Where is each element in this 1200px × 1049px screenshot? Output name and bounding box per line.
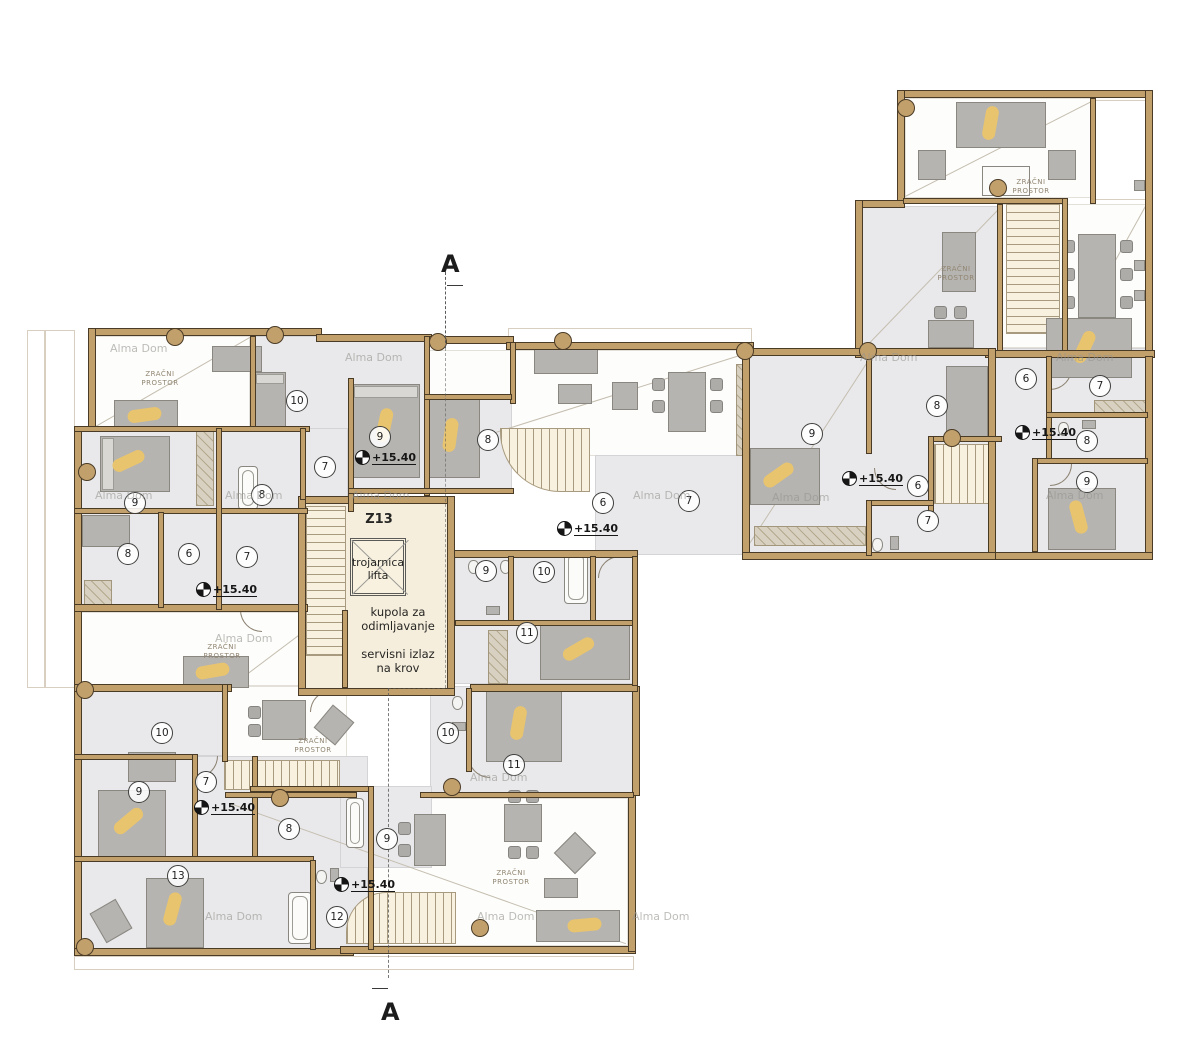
wall (1046, 412, 1148, 418)
watermark: Alma Dom (225, 489, 282, 502)
watermark: Alma Dom (860, 351, 917, 364)
column (897, 99, 915, 117)
wall (866, 500, 872, 556)
elevation-marker: +15.40 (194, 800, 255, 815)
column (271, 789, 289, 807)
armchair (1048, 150, 1076, 180)
wall (988, 552, 1153, 560)
air-space-label: ZRAČNI PROSTOR (918, 265, 994, 283)
bathtub (346, 798, 364, 848)
watermark: Alma Dom (477, 910, 534, 923)
wall (742, 348, 750, 560)
wall (632, 686, 640, 796)
wall (74, 604, 308, 612)
table (262, 700, 306, 740)
watermark: Alma Dom (1046, 489, 1103, 502)
wall (222, 684, 228, 762)
column (266, 326, 284, 344)
wall (225, 792, 357, 798)
wardrobe (754, 526, 866, 546)
chair (954, 306, 967, 319)
watermark: Alma Dom (632, 910, 689, 923)
bed-single (82, 515, 130, 547)
wall (88, 328, 96, 432)
wall (368, 786, 374, 950)
air-space-label: ZRAČNI PROSTOR (993, 178, 1069, 196)
wall (316, 334, 432, 342)
wall (466, 688, 472, 772)
column (554, 332, 572, 350)
chair (652, 400, 665, 413)
wall (1090, 98, 1096, 204)
benchmark-icon (1015, 425, 1030, 440)
elevator-label: trojarnica lifta (348, 556, 408, 582)
wall (342, 610, 348, 688)
column (166, 328, 184, 346)
wall (88, 328, 322, 336)
wall (997, 204, 1003, 352)
floor-plan: A A Z13 trojarnica lifta kupola za odiml… (0, 0, 1200, 1049)
wall (298, 496, 306, 696)
sink (486, 606, 500, 615)
wall (158, 512, 164, 608)
watermark: Alma Dom (633, 489, 690, 502)
watermark: Alma Dom (352, 489, 409, 502)
stairs (500, 428, 590, 492)
room-number-badge: 10 (286, 390, 308, 412)
sofa (956, 102, 1046, 148)
column (736, 342, 754, 360)
section-marker-top: A (441, 250, 460, 278)
chair (1120, 240, 1133, 253)
elevation-marker: +15.40 (557, 521, 618, 536)
section-tick (447, 285, 463, 286)
wall (928, 436, 1002, 442)
room-number-badge: 11 (516, 622, 538, 644)
room-number-badge: 8 (926, 395, 948, 417)
elevation-value: +15.40 (574, 523, 618, 536)
wall (628, 792, 636, 952)
elevation-value: +15.40 (211, 802, 255, 815)
wall (1145, 90, 1153, 358)
room-number-badge: 13 (167, 865, 189, 887)
table (414, 814, 446, 866)
wall (424, 394, 512, 400)
chair (710, 378, 723, 391)
side-table (544, 878, 578, 898)
chair (248, 724, 261, 737)
air-space-label: ZRAČNI PROSTOR (473, 869, 549, 887)
wardrobe (196, 430, 214, 506)
wall (988, 348, 996, 558)
benchmark-icon (196, 582, 211, 597)
wall (74, 508, 308, 514)
room-number-badge: 6 (178, 543, 200, 565)
wall (300, 428, 306, 500)
benchmark-icon (842, 471, 857, 486)
wall (1032, 458, 1148, 464)
wall (310, 860, 316, 950)
wall (1032, 458, 1038, 552)
room-number-badge: 7 (917, 510, 939, 532)
room-number-badge: 10 (437, 722, 459, 744)
dining-table (668, 372, 706, 432)
toilet (872, 538, 883, 552)
elevation-marker: +15.40 (355, 450, 416, 465)
wall (74, 856, 314, 862)
desk (942, 232, 976, 292)
wall (1046, 356, 1052, 464)
watermark: Alma Dom (110, 342, 167, 355)
room-number-badge: 9 (376, 828, 398, 850)
bedroom (78, 686, 226, 756)
benchmark-icon (334, 877, 349, 892)
room-number-badge: 8 (1076, 430, 1098, 452)
watermark: Alma Dom (345, 351, 402, 364)
armchair (918, 150, 946, 180)
air-space-label: ZRAČNI PROSTOR (122, 370, 198, 388)
chair (508, 846, 521, 859)
wall (340, 946, 636, 954)
wall (508, 556, 514, 624)
chair (248, 706, 261, 719)
wardrobe (488, 630, 508, 684)
pillow (354, 386, 418, 398)
wall (447, 496, 455, 696)
room-number-badge: 7 (236, 546, 258, 568)
wall (452, 550, 638, 558)
chair (1120, 296, 1133, 309)
chair (398, 822, 411, 835)
benchmark-icon (557, 521, 572, 536)
room-number-badge: 10 (151, 722, 173, 744)
benchmark-icon (355, 450, 370, 465)
section-line (388, 688, 445, 689)
wall (1062, 198, 1068, 352)
watermark: Alma Dom (95, 489, 152, 502)
column (443, 778, 461, 796)
section-tick (372, 988, 388, 989)
chair (710, 400, 723, 413)
wall (74, 754, 198, 760)
elevation-marker: +15.40 (1015, 425, 1076, 440)
elevation-value: +15.40 (351, 879, 395, 892)
watermark: Alma Dom (772, 491, 829, 504)
wall (897, 90, 1153, 98)
wall (250, 336, 256, 432)
room-number-badge: 6 (592, 492, 614, 514)
watermark: Alma Dom (205, 910, 262, 923)
wall (298, 688, 455, 696)
dining-table (504, 804, 542, 842)
elevation-marker: +15.40 (196, 582, 257, 597)
table (928, 320, 974, 348)
terrace-outline (45, 330, 75, 688)
stairs (934, 444, 994, 504)
section-line (445, 348, 446, 688)
elevation-value: +15.40 (372, 452, 416, 465)
room-number-badge: 7 (1089, 375, 1111, 397)
toilet (316, 870, 327, 884)
stairs (1006, 204, 1060, 334)
column (78, 463, 96, 481)
terrace-outline (74, 956, 634, 970)
armchair (612, 382, 638, 410)
dining-table (1078, 234, 1116, 318)
stairs (306, 506, 346, 656)
wall (855, 200, 863, 358)
wall (506, 342, 754, 350)
stairs (346, 892, 456, 944)
room-number-badge: 6 (1015, 368, 1037, 390)
smoke-dome-label: kupola za odimljavanje (354, 606, 442, 634)
room-number-badge: 7 (195, 771, 217, 793)
wardrobe (84, 580, 112, 606)
elevation-value: +15.40 (213, 584, 257, 597)
air-space-label: ZRAČNI PROSTOR (275, 737, 351, 755)
watermark: Alma Dom (470, 771, 527, 784)
room-number-badge: 9 (128, 781, 150, 803)
hallway (595, 455, 745, 555)
wall (866, 500, 934, 506)
wall (903, 198, 1068, 204)
core-code-label: Z13 (354, 512, 404, 528)
bathtub (564, 550, 588, 604)
side-table (558, 384, 592, 404)
elevation-marker: +15.40 (842, 471, 903, 486)
section-marker-bottom: A (381, 998, 400, 1026)
watermark: Alma Dom (215, 632, 272, 645)
sink (1082, 420, 1096, 429)
room-number-badge: 6 (907, 475, 929, 497)
elevation-value: +15.40 (859, 473, 903, 486)
wall (866, 352, 872, 454)
room-number-badge: 8 (477, 429, 499, 451)
chair (526, 846, 539, 859)
bathtub (288, 892, 312, 944)
service-exit-label: servisni izlaz na krov (352, 648, 444, 676)
elevation-marker: +15.40 (334, 877, 395, 892)
sink (890, 536, 899, 550)
wall (455, 620, 638, 626)
pillow (256, 374, 284, 384)
kitchen-appliance (1134, 260, 1145, 271)
room-number-badge: 7 (314, 456, 336, 478)
room-number-badge: 12 (326, 906, 348, 928)
chair (398, 844, 411, 857)
chair (652, 378, 665, 391)
column (76, 681, 94, 699)
wall (632, 556, 638, 686)
elevation-value: +15.40 (1032, 427, 1076, 440)
wall (74, 426, 310, 432)
room-number-badge: 8 (278, 818, 300, 840)
toilet (452, 696, 463, 710)
kitchen-appliance (1134, 180, 1145, 191)
room-number-badge: 9 (801, 423, 823, 445)
room-number-badge: 8 (117, 543, 139, 565)
wall (424, 336, 430, 496)
wall (74, 684, 232, 692)
column (76, 938, 94, 956)
room-number-badge: 10 (533, 561, 555, 583)
room-number-badge: 9 (369, 426, 391, 448)
terrace-outline (27, 330, 45, 688)
air-space-label: ZRAČNI PROSTOR (184, 643, 260, 661)
chair (1120, 268, 1133, 281)
benchmark-icon (194, 800, 209, 815)
kitchen-appliance (1134, 290, 1145, 301)
room-number-badge: 9 (475, 560, 497, 582)
wall (590, 556, 596, 624)
chair (934, 306, 947, 319)
wall (470, 684, 638, 692)
watermark: Alma Dom (1056, 351, 1113, 364)
section-line (445, 272, 446, 348)
column (943, 429, 961, 447)
